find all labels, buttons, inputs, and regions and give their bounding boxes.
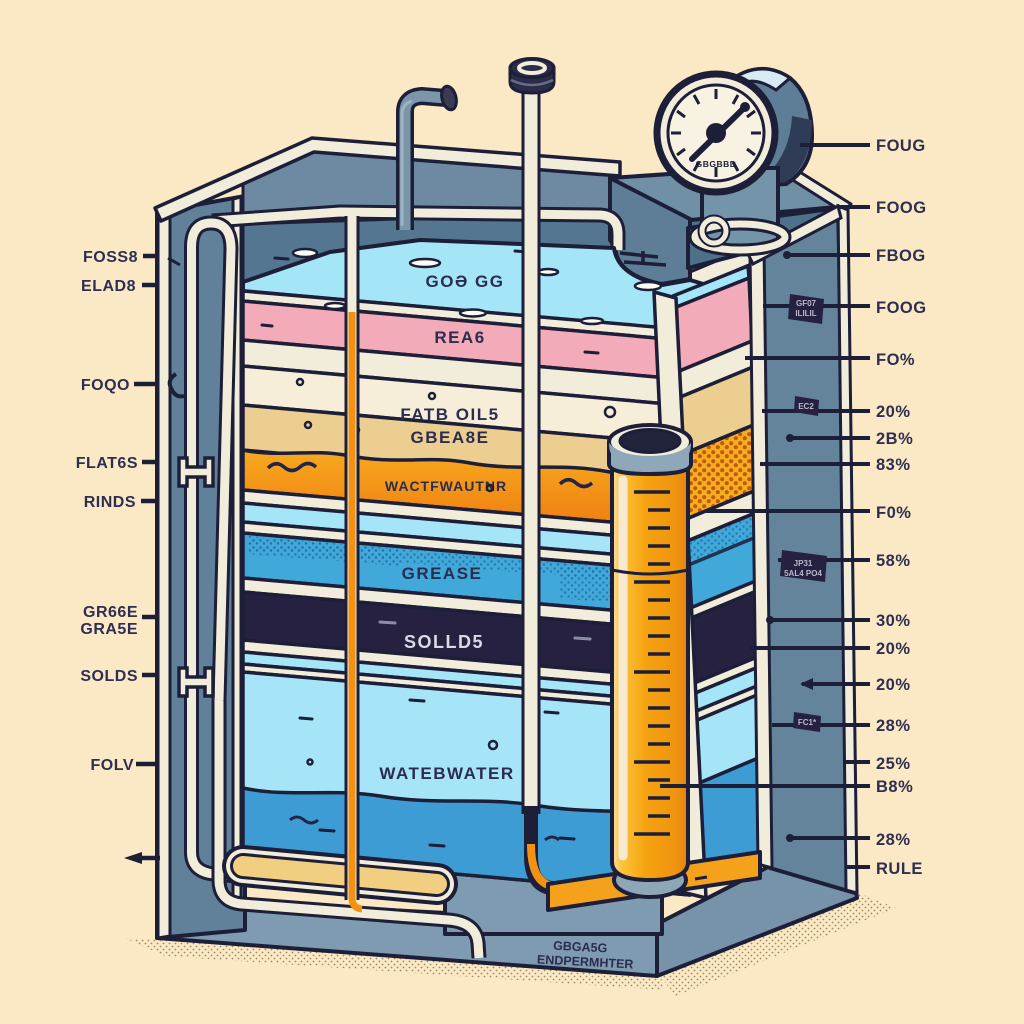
svg-text:GBEA8E: GBEA8E xyxy=(411,428,490,447)
svg-text:5AL4 PO4: 5AL4 PO4 xyxy=(784,569,822,578)
svg-text:20%: 20% xyxy=(876,403,911,421)
svg-text:2B%: 2B% xyxy=(876,430,913,448)
svg-text:RULE: RULE xyxy=(876,860,923,878)
svg-text:GF07: GF07 xyxy=(796,299,817,308)
svg-text:JP31: JP31 xyxy=(794,559,813,568)
svg-text:GRA5E: GRA5E xyxy=(80,621,138,638)
svg-text:83%: 83% xyxy=(876,456,911,474)
svg-text:GBGBBD: GBGBBD xyxy=(696,159,737,169)
svg-text:GREASE: GREASE xyxy=(402,564,483,583)
svg-text:28%: 28% xyxy=(876,831,911,849)
svg-text:FOOG: FOOG xyxy=(876,299,927,317)
svg-text:RINDS: RINDS xyxy=(84,494,136,511)
svg-text:FLAT6S: FLAT6S xyxy=(76,455,138,472)
svg-text:FC1*: FC1* xyxy=(798,718,817,727)
svg-text:FOOG: FOOG xyxy=(876,199,927,217)
svg-text:REA6: REA6 xyxy=(434,328,485,347)
svg-text:FATB OIL5: FATB OIL5 xyxy=(400,405,499,424)
svg-text:F0%: F0% xyxy=(876,504,911,522)
svg-text:FBOG: FBOG xyxy=(876,247,926,265)
svg-text:FOUG: FOUG xyxy=(876,137,926,155)
svg-text:ILILIL: ILILIL xyxy=(795,309,816,318)
svg-text:GOƏ GG: GOƏ GG xyxy=(426,272,505,291)
svg-text:EC2: EC2 xyxy=(798,402,814,411)
svg-text:SOLDS: SOLDS xyxy=(80,668,138,685)
svg-text:FOQO: FOQO xyxy=(81,377,130,394)
svg-text:FOSS8: FOSS8 xyxy=(83,249,138,266)
svg-text:ELAD8: ELAD8 xyxy=(81,278,136,295)
svg-text:20%: 20% xyxy=(876,640,911,658)
svg-text:B8%: B8% xyxy=(876,778,913,796)
svg-text:SOLLD5: SOLLD5 xyxy=(404,632,484,652)
svg-text:58%: 58% xyxy=(876,552,911,570)
svg-text:WATEBWATER: WATEBWATER xyxy=(379,764,514,783)
svg-text:30%: 30% xyxy=(876,612,911,630)
svg-text:25%: 25% xyxy=(876,755,911,773)
svg-text:GR66E: GR66E xyxy=(83,604,138,621)
svg-text:28%: 28% xyxy=(876,717,911,735)
svg-text:FOLV: FOLV xyxy=(91,757,134,774)
svg-text:20%: 20% xyxy=(876,676,911,694)
svg-text:FO%: FO% xyxy=(876,351,915,369)
